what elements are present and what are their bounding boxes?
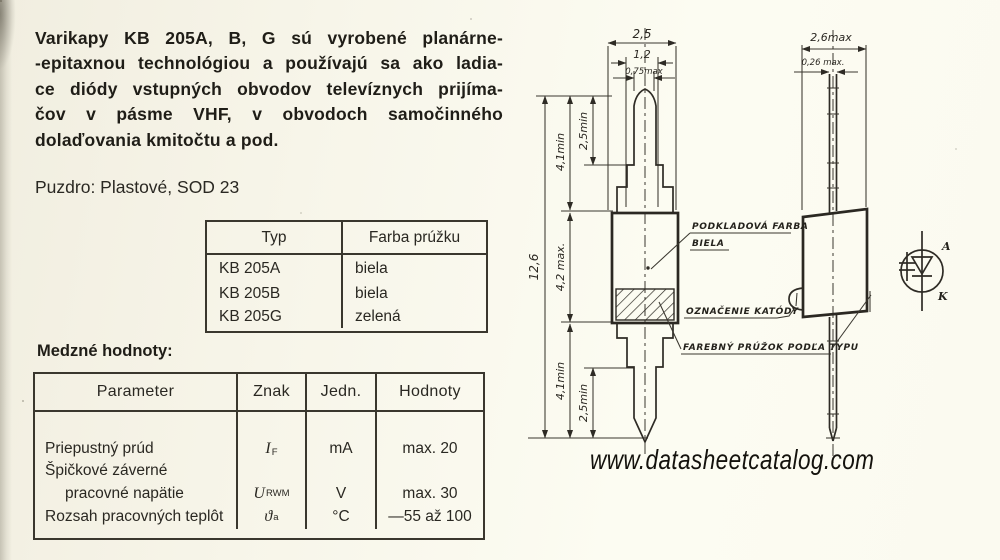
table-cell: ϑa: [238, 505, 307, 529]
table-cell: Rozsah pracovných teplôt: [35, 505, 238, 529]
scan-artifact-corner: [0, 0, 16, 70]
dim-body-width: 2,5: [632, 27, 651, 41]
front-view-drawing: 2,5 1,2 0,75max 12,6 4,1min 2,5min 4,2 m…: [527, 27, 678, 458]
dim-lead-thickness: 0,26 max.: [802, 58, 845, 68]
package-line: Puzdro: Plastové, SOD 23: [35, 177, 239, 198]
symbol-subscript: F: [272, 447, 278, 458]
type-table-header-farba: Farba prúžku: [343, 222, 486, 255]
symbol-subscript: RWM: [266, 488, 290, 499]
table-cell: biela: [343, 282, 486, 305]
limits-header-parameter: Parameter: [35, 374, 238, 412]
type-table-header-typ: Typ: [207, 222, 343, 255]
watermark-url: www.datasheetcatalog.com: [590, 444, 874, 476]
side-view-drawing: 2,6max 0,26 max.: [789, 30, 870, 468]
scan-artifact-left-edge: [0, 0, 12, 560]
table-cell: max. 30: [377, 482, 483, 505]
anode-label: A: [941, 240, 951, 253]
symbol-subscript: a: [273, 512, 278, 523]
intro-line: čov v pásme VHF, v obvodoch samočinného: [35, 102, 503, 127]
intro-line: Varikapy KB 205A, B, G sú vyrobené planá…: [35, 26, 503, 51]
annotation-labels: PODKLADOVÁ FARBA BIELA OZNAČENIE KATÓDY …: [651, 220, 871, 354]
dim-lead-bottom-length: 4,1min: [554, 362, 567, 400]
dim-lead-bottom-tip: 2,5min: [577, 384, 590, 422]
limits-header-hodnoty: Hodnoty: [377, 374, 483, 412]
dim-body-length: 4,2 max.: [554, 243, 567, 291]
intro-paragraph: Varikapy KB 205A, B, G sú vyrobené planá…: [35, 26, 503, 153]
table-cell: V: [307, 482, 377, 505]
symbol-letter: I: [265, 440, 270, 458]
table-cell: biela: [343, 255, 486, 282]
scan-specks: [0, 0, 2, 2]
symbol-letter: ϑ: [264, 508, 272, 526]
datasheet-page: Varikapy KB 205A, B, G sú vyrobené planá…: [0, 0, 1000, 560]
table-cell: IF: [238, 412, 307, 460]
dim-body-depth: 2,6max: [810, 31, 852, 44]
table-cell: KB 205G: [207, 305, 343, 328]
dim-lead-top-tip: 2,5min: [577, 112, 590, 150]
table-cell: KB 205A: [207, 255, 343, 282]
dim-lead-step-width: 1,2: [633, 48, 651, 61]
table-cell: zelená: [343, 305, 486, 328]
limits-section-title: Medzné hodnoty:: [37, 342, 173, 361]
table-cell: [307, 460, 377, 482]
limits-header-znak: Znak: [238, 374, 307, 412]
symbol-letter: U: [253, 485, 265, 503]
limit-values-table: Parameter Znak Jedn. Hodnoty Priepustný …: [33, 372, 485, 540]
type-color-table: Typ Farba prúžku KB 205A biela KB 205B b…: [205, 220, 488, 333]
dim-overall-length: 12,6: [527, 253, 541, 280]
table-cell: Priepustný prúd: [35, 412, 238, 460]
varicap-symbol: A K: [899, 231, 951, 311]
cathode-label: K: [937, 290, 948, 303]
table-cell: KB 205B: [207, 282, 343, 305]
label-color-stripe: FAREBNÝ PRÚŽOK PODĽA TYPU: [683, 341, 859, 353]
dim-lead-tip-width: 0,75max: [625, 67, 663, 77]
label-cathode-mark: OZNAČENIE KATÓDY: [686, 305, 799, 317]
label-base-color-line2: BIELA: [692, 239, 725, 249]
dim-lead-top-length: 4,1min: [554, 133, 567, 171]
intro-line: -epitaxnou technológiou a používajú sa a…: [35, 51, 503, 76]
table-cell: URWM: [238, 482, 307, 505]
table-cell: pracovné napätie: [35, 482, 238, 505]
table-cell: —55 až 100: [377, 505, 483, 529]
table-cell: max. 20: [377, 412, 483, 460]
table-cell: Špičkové záverné: [35, 460, 238, 482]
table-cell: [377, 460, 483, 482]
limits-header-jedn: Jedn.: [307, 374, 377, 412]
package-body-side: [803, 209, 867, 317]
intro-line: dolaďovania kmitočtu a pod.: [35, 128, 503, 153]
label-base-color-line1: PODKLADOVÁ FARBA: [692, 220, 809, 232]
package-drawing: 2,5 1,2 0,75max 12,6 4,1min 2,5min 4,2 m…: [520, 0, 1000, 560]
table-cell: [238, 460, 307, 482]
intro-line: ce diódy vstupných obvodov televíznych p…: [35, 77, 503, 102]
table-cell: °C: [307, 505, 377, 529]
table-cell: mA: [307, 412, 377, 460]
